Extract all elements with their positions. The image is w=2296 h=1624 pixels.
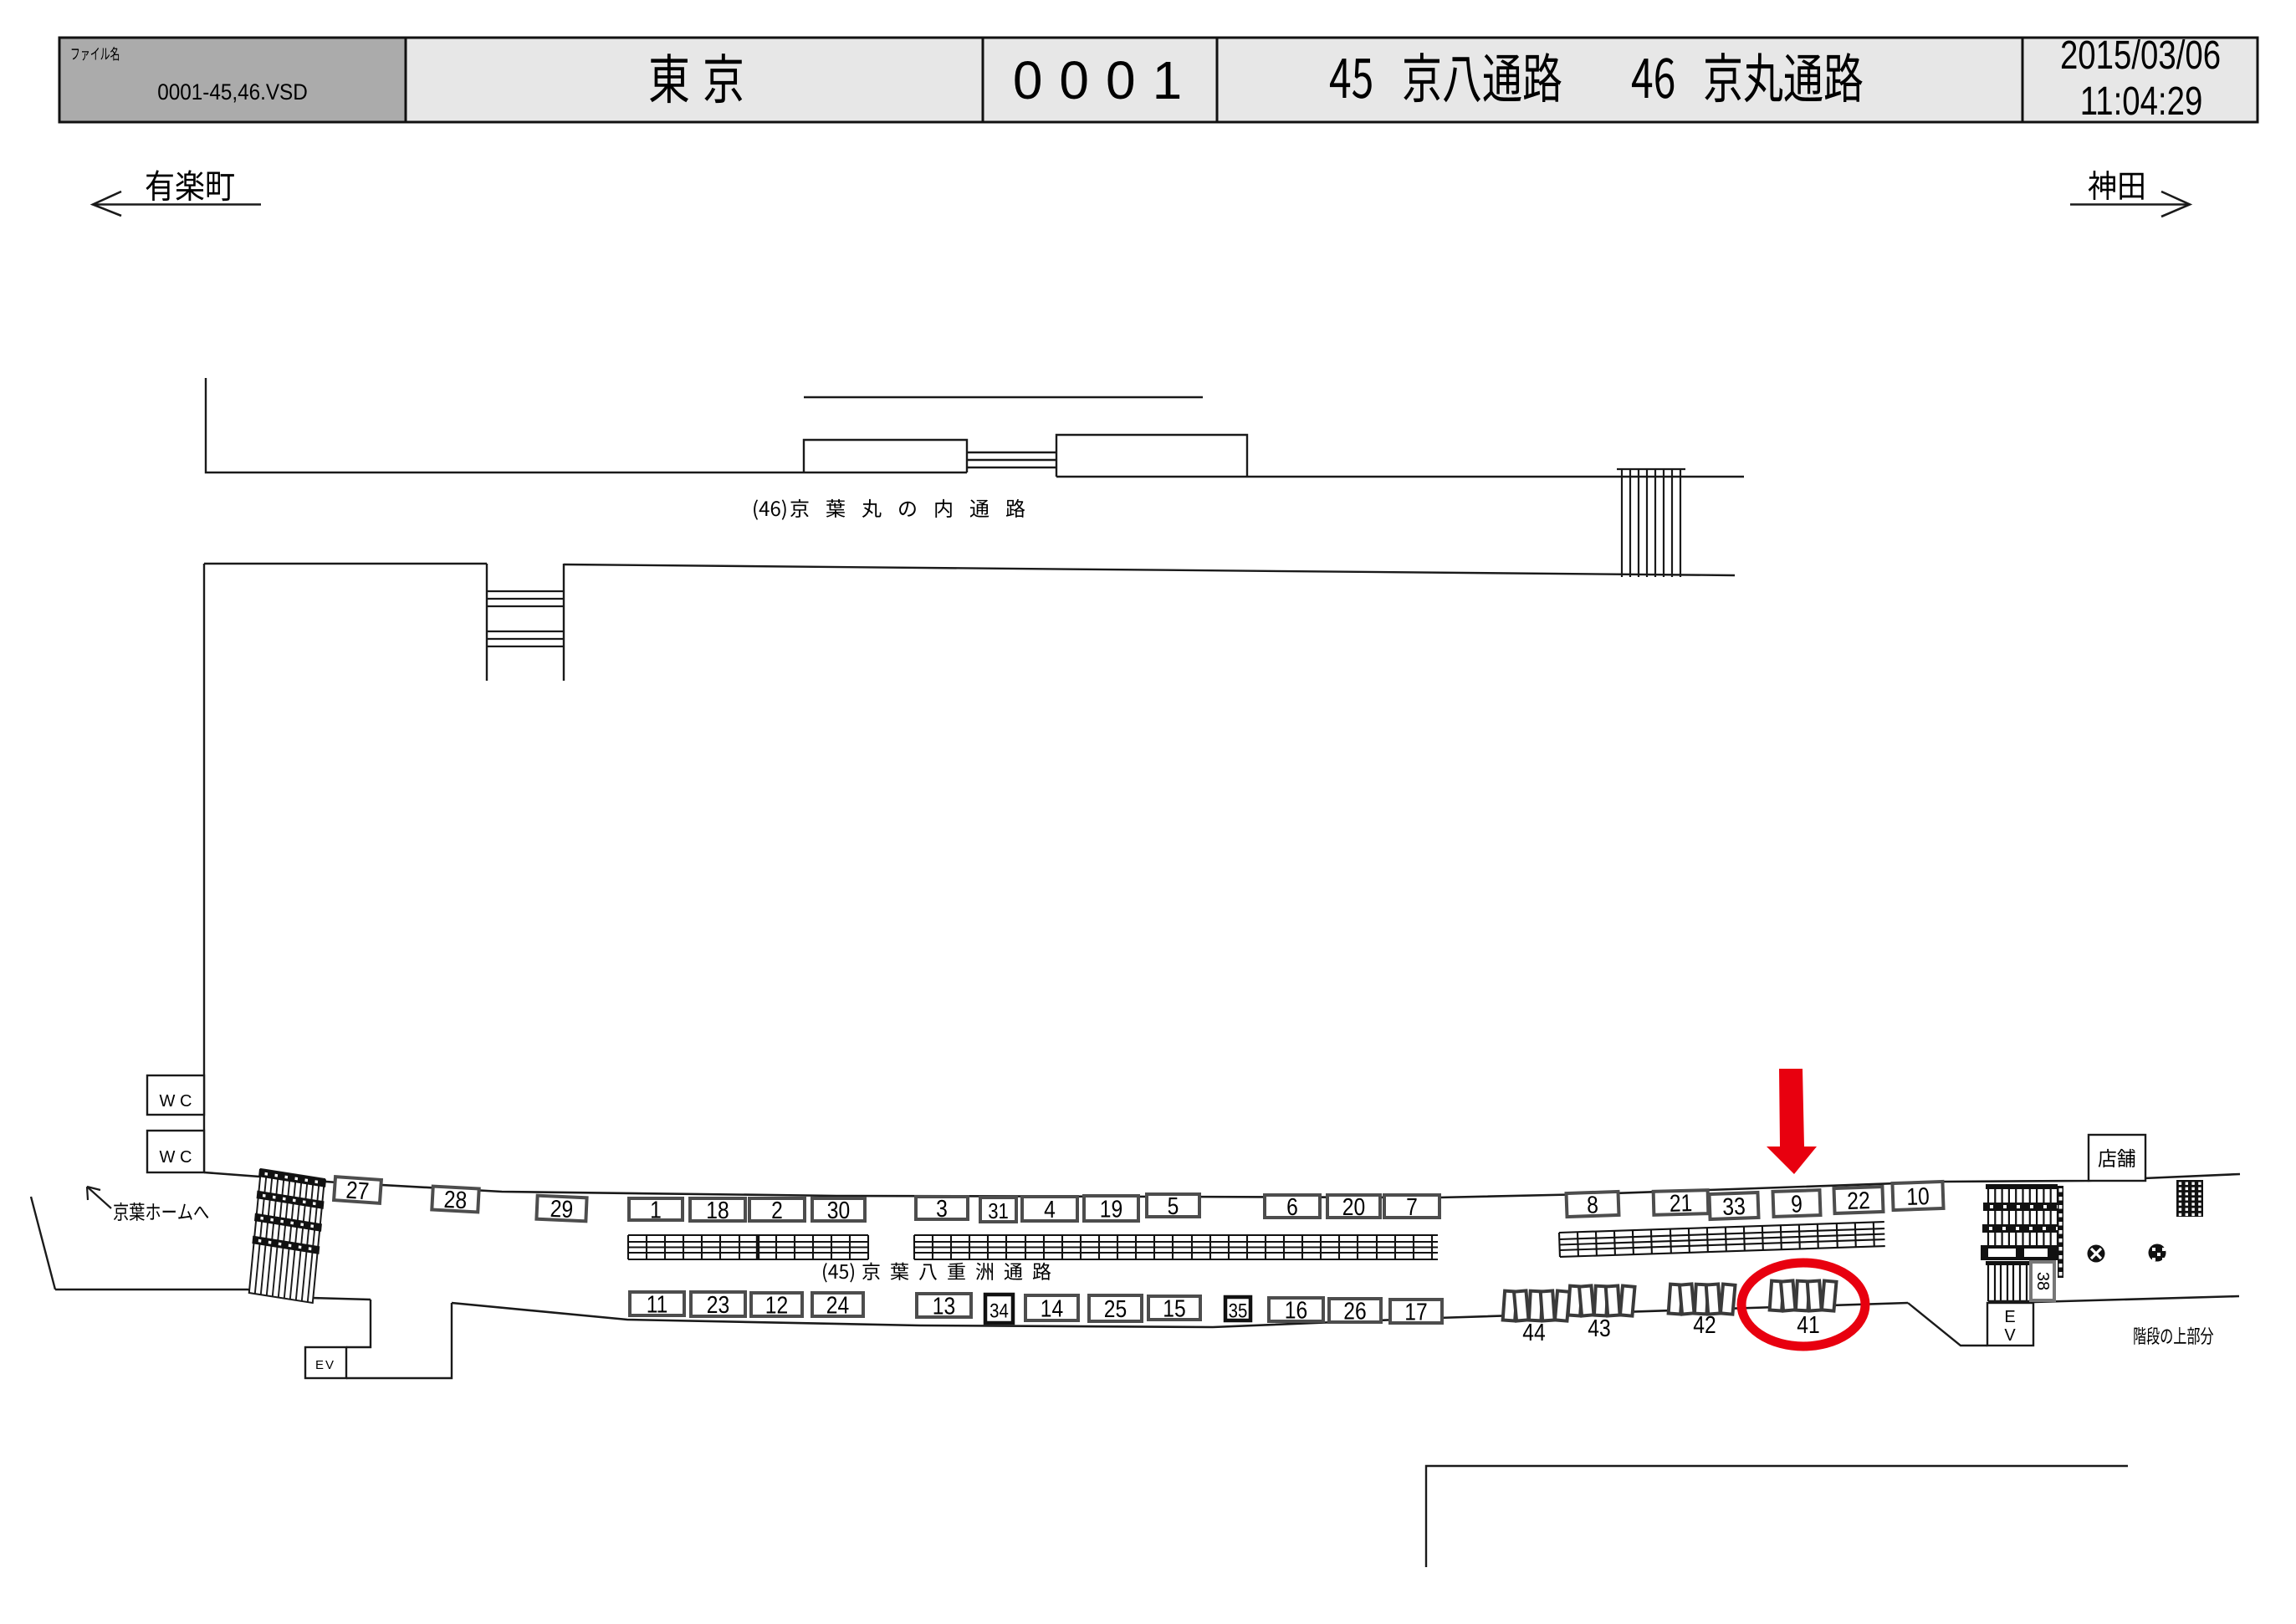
svg-text:23: 23: [707, 1291, 729, 1318]
svg-text:38: 38: [2033, 1272, 2052, 1290]
svg-text:E: E: [2004, 1308, 2015, 1326]
svg-text:24: 24: [826, 1292, 849, 1319]
svg-text:6: 6: [1286, 1193, 1298, 1220]
svg-text:V: V: [2004, 1326, 2016, 1345]
svg-text:19: 19: [1100, 1196, 1122, 1223]
svg-text:4: 4: [1044, 1196, 1056, 1223]
svg-text:10: 10: [1906, 1182, 1930, 1210]
svg-text:17: 17: [1404, 1299, 1427, 1325]
svg-text:29: 29: [550, 1195, 574, 1223]
svg-text:W C: W C: [160, 1148, 192, 1167]
svg-text:25: 25: [1104, 1295, 1127, 1322]
svg-text:27: 27: [345, 1177, 371, 1205]
svg-text:EV: EV: [315, 1358, 335, 1372]
svg-text:11: 11: [647, 1291, 668, 1318]
svg-text:22: 22: [1847, 1187, 1871, 1214]
svg-text:0001: 0001: [1013, 50, 1199, 110]
svg-text:28: 28: [443, 1186, 468, 1214]
svg-text:2015/03/06: 2015/03/06: [2060, 33, 2221, 78]
svg-text:5: 5: [1168, 1192, 1179, 1219]
svg-text:33: 33: [1722, 1192, 1746, 1220]
svg-text:18: 18: [706, 1197, 729, 1223]
svg-text:9: 9: [1791, 1190, 1803, 1218]
svg-text:30: 30: [827, 1197, 850, 1223]
svg-text:8: 8: [1587, 1191, 1599, 1218]
svg-text:13: 13: [933, 1293, 955, 1320]
svg-text:34: 34: [989, 1300, 1009, 1322]
svg-text:41: 41: [1797, 1311, 1819, 1338]
svg-text:15: 15: [1163, 1295, 1185, 1322]
svg-text:16: 16: [1285, 1297, 1307, 1324]
svg-text:12: 12: [765, 1292, 788, 1319]
svg-text:35: 35: [1229, 1300, 1248, 1322]
svg-text:7: 7: [1406, 1193, 1418, 1220]
svg-text:44: 44: [1522, 1319, 1545, 1346]
svg-text:1: 1: [650, 1197, 662, 1223]
svg-text:0001-45,46.VSD: 0001-45,46.VSD: [157, 80, 308, 105]
svg-text:43: 43: [1588, 1315, 1610, 1341]
svg-text:20: 20: [1342, 1193, 1365, 1220]
svg-text:14: 14: [1041, 1295, 1063, 1322]
svg-text:21: 21: [1669, 1189, 1692, 1217]
svg-text:11:04:29: 11:04:29: [2080, 79, 2203, 124]
svg-text:W C: W C: [160, 1092, 192, 1111]
svg-text:31: 31: [988, 1199, 1009, 1223]
svg-text:3: 3: [936, 1195, 948, 1222]
svg-text:2: 2: [771, 1197, 783, 1223]
svg-text:42: 42: [1693, 1311, 1716, 1338]
svg-text:26: 26: [1343, 1298, 1366, 1325]
